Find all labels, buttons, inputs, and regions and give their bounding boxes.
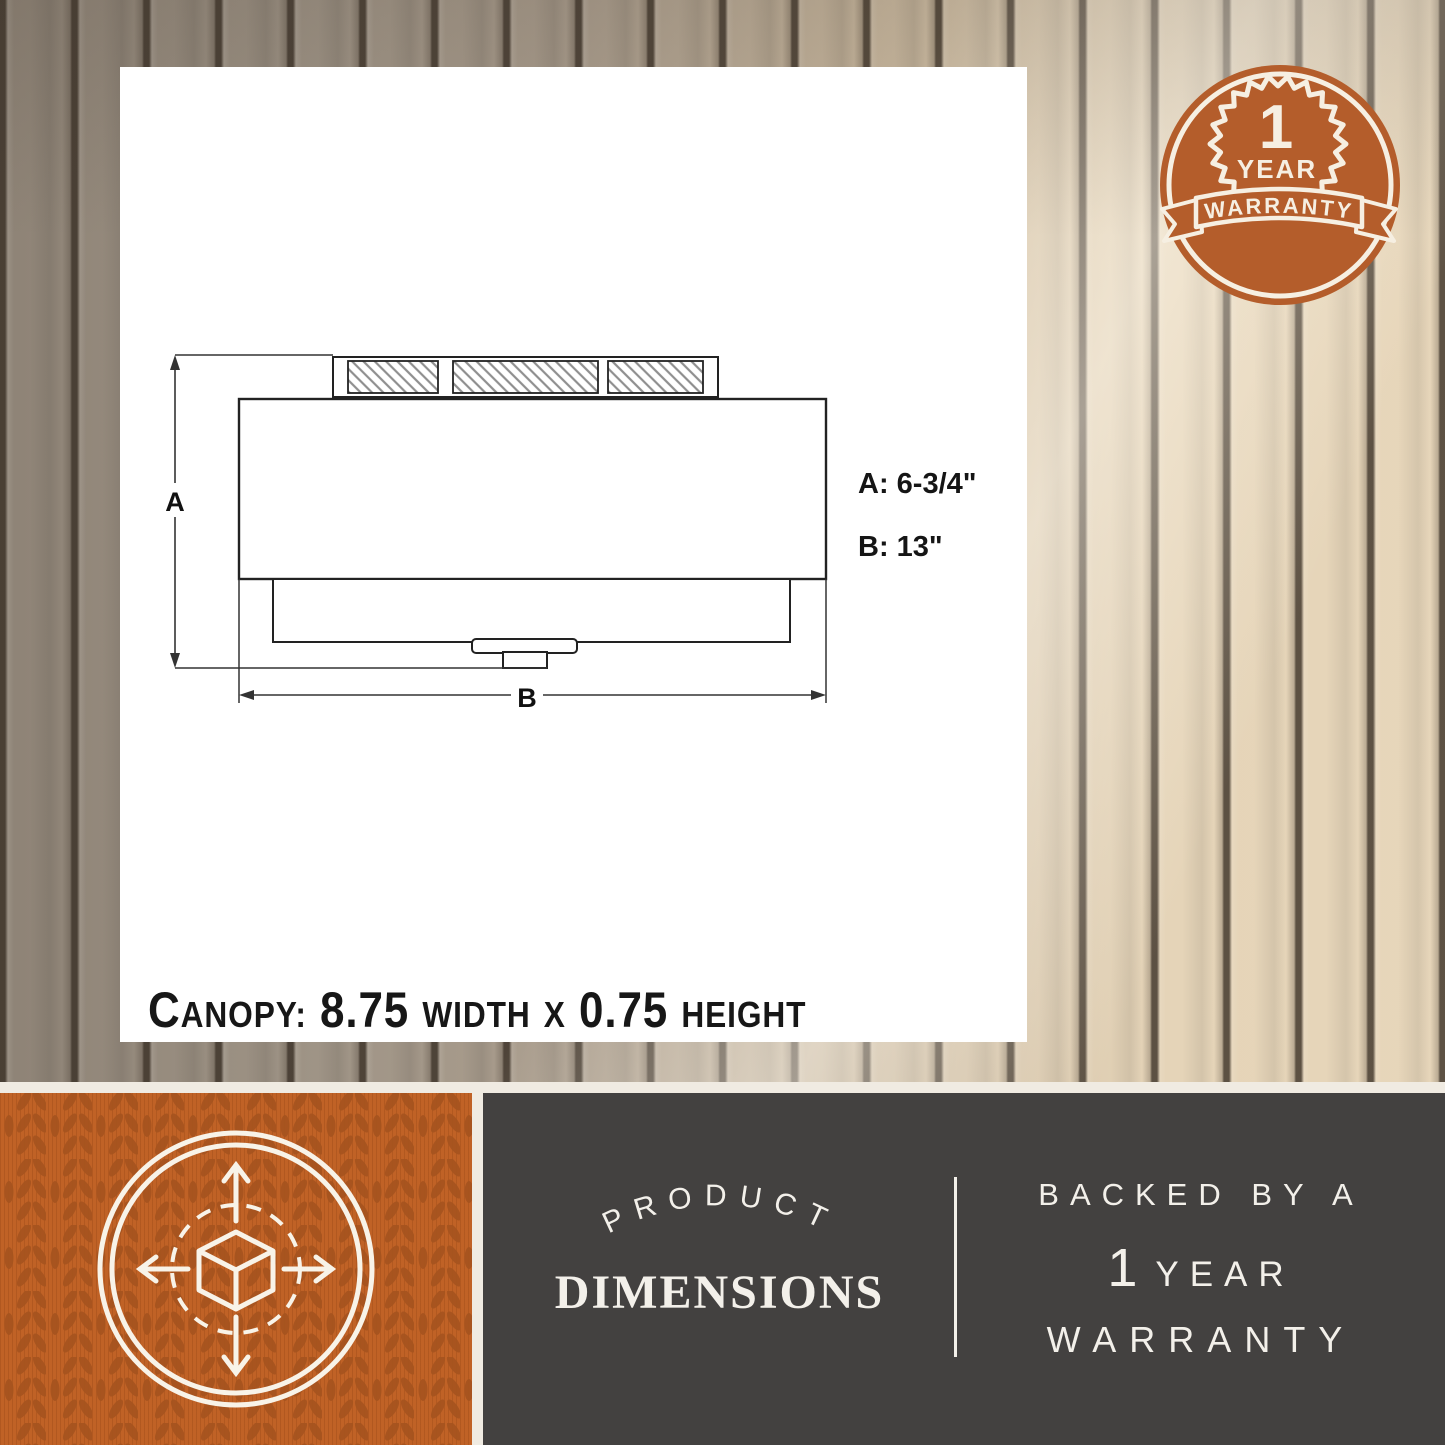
canopy-height-word: height [681,994,806,1036]
canopy-width-value: 8.75 [320,981,409,1039]
canopy-hatch-center [453,361,598,393]
finial-cap [472,639,577,653]
cube-icon [199,1232,273,1309]
backed-by-line: BACKED BY A [957,1177,1445,1213]
canopy-hatch-left [348,361,438,393]
spec-a-label: A: 6-3/4" [858,468,977,500]
warranty-number: 1 [1107,1237,1137,1299]
technical-drawing: A B A: 6-3/4" B: 13" [120,67,1027,787]
dimension-b: B [239,678,826,713]
warranty-text-block: BACKED BY A 1 YEAR WARRANTY [957,1093,1445,1445]
spec-b-label: B: 13" [858,531,943,563]
badge-year-label: YEAR [1237,154,1317,184]
dimensions-icon-panel [0,1093,472,1445]
canopy-note: Canopy: 8.75 width x 0.75 height [148,981,806,1039]
badge-number: 1 [1259,93,1293,162]
shade-body [239,399,826,579]
canopy-hatch-right [608,361,703,393]
dimensions-icon [0,1093,472,1445]
finial-knob [503,652,547,668]
dimension-a: A [162,355,188,668]
warranty-badge: 1 YEAR WARRANTY [1150,60,1410,310]
product-dimensions-panel: PRODUCT DIMENSIONS BACKED BY A 1 YEAR WA… [483,1093,1445,1445]
dimensions-title: DIMENSIONS [483,1265,956,1320]
canopy-note-label: Canopy: [148,981,307,1039]
canopy-times: x [544,994,566,1036]
dim-b-letter: B [517,683,537,713]
shade-diffuser [273,579,790,642]
product-diagram-panel: A B A: 6-3/4" B: 13" Canopy: 8.75 width … [120,67,1027,1042]
one-year-line: 1 YEAR [957,1237,1445,1299]
product-arch-text: PRODUCT [597,1179,842,1240]
svg-text:PRODUCT: PRODUCT [597,1179,842,1240]
dim-a-letter: A [165,487,185,517]
canopy-width-word: width [422,994,530,1036]
warranty-year-word: YEAR [1155,1255,1294,1295]
warranty-word-line: WARRANTY [957,1319,1445,1361]
canopy-height-value: 0.75 [579,981,668,1039]
